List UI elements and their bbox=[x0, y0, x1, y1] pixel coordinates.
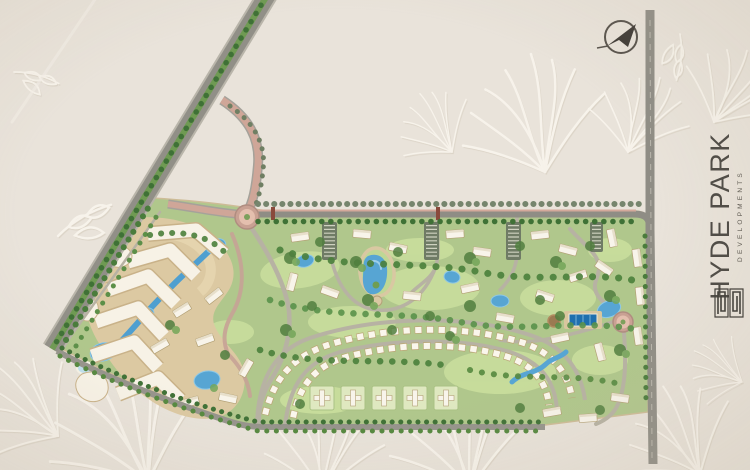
compass-north-arrow-icon bbox=[595, 12, 647, 64]
right-road bbox=[650, 10, 653, 464]
master-plan-map bbox=[0, 0, 750, 470]
brand-name: HYDE PARK bbox=[707, 132, 734, 300]
masterplan-page: HYDE PARK DEVELOPMENTS bbox=[0, 0, 750, 470]
brand-block: HYDE PARK DEVELOPMENTS bbox=[699, 143, 750, 289]
greek-key-square-logo bbox=[713, 287, 745, 319]
brand-subtitle: DEVELOPMENTS bbox=[737, 170, 744, 262]
roundabout-west bbox=[235, 205, 259, 229]
villa-grid-plots bbox=[310, 386, 458, 410]
